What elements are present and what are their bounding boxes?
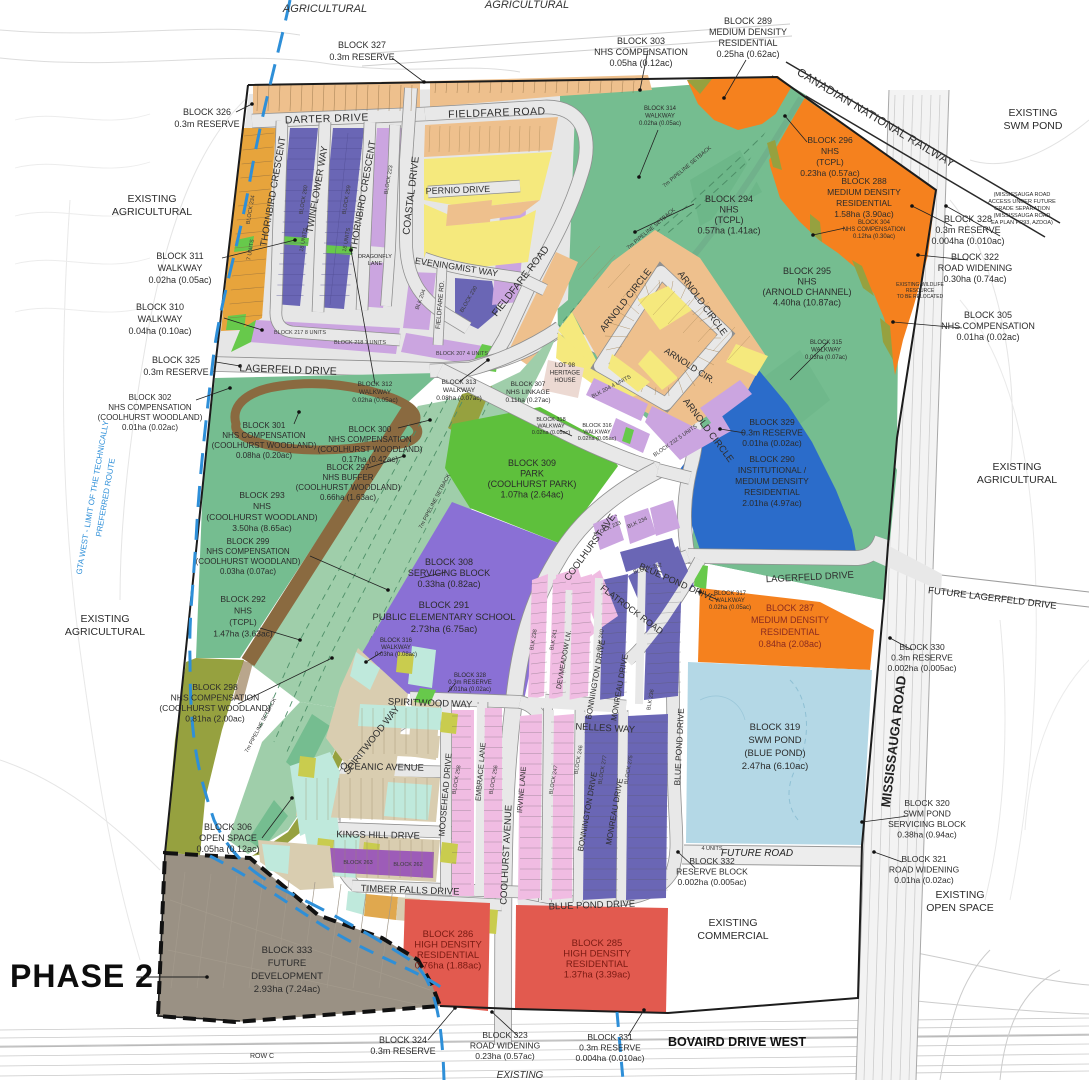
svg-text:RESIDENTIAL: RESIDENTIAL — [417, 950, 479, 961]
svg-text:BLOCK 304: BLOCK 304 — [858, 220, 891, 226]
svg-text:BLOCK 317: BLOCK 317 — [714, 591, 747, 597]
svg-text:0.004ha (0.010ac): 0.004ha (0.010ac) — [576, 1053, 645, 1063]
svg-text:BLOCK 289: BLOCK 289 — [724, 16, 772, 26]
svg-text:0.02ha (0.05ac): 0.02ha (0.05ac) — [148, 275, 211, 285]
svg-text:BLOCK 293: BLOCK 293 — [239, 490, 285, 500]
svg-text:BLOCK 263: BLOCK 263 — [343, 860, 372, 866]
svg-text:(COOLHURST WOODLAND): (COOLHURST WOODLAND) — [159, 703, 270, 713]
svg-text:BLOCK 325: BLOCK 325 — [152, 355, 200, 365]
svg-text:BLOCK 294: BLOCK 294 — [705, 194, 753, 204]
svg-text:1.47ha (3.63ac): 1.47ha (3.63ac) — [213, 629, 273, 639]
svg-text:0.03ha (0.08ac): 0.03ha (0.08ac) — [375, 652, 417, 658]
svg-text:(COOLHURST WOODLAND): (COOLHURST WOODLAND) — [296, 483, 401, 492]
svg-text:PARK: PARK — [520, 469, 544, 479]
svg-text:0.76ha (1.88ac): 0.76ha (1.88ac) — [415, 961, 482, 972]
svg-text:AGRICULTURAL: AGRICULTURAL — [977, 474, 1057, 486]
svg-text:NHS LINKAGE: NHS LINKAGE — [506, 389, 550, 396]
svg-text:DEVELOPMENT: DEVELOPMENT — [251, 971, 323, 982]
svg-text:(ARNOLD CHANNEL): (ARNOLD CHANNEL) — [762, 287, 851, 297]
svg-text:0.81ha (2.00ac): 0.81ha (2.00ac) — [185, 714, 245, 724]
svg-text:BLOCK 300: BLOCK 300 — [349, 425, 392, 434]
svg-text:2.73ha (6.75ac): 2.73ha (6.75ac) — [411, 624, 478, 635]
svg-text:RESIDENTIAL: RESIDENTIAL — [836, 198, 892, 208]
svg-text:BLOCK 295: BLOCK 295 — [783, 266, 831, 276]
svg-text:INSTITUTIONAL /: INSTITUTIONAL / — [738, 465, 807, 475]
svg-text:AGRICULTURAL: AGRICULTURAL — [65, 626, 145, 638]
svg-text:NHS: NHS — [821, 146, 839, 156]
svg-text:LANE: LANE — [368, 261, 383, 267]
svg-text:0.84ha (2.08ac): 0.84ha (2.08ac) — [758, 639, 821, 649]
svg-text:(COOLHURST WOODLAND): (COOLHURST WOODLAND) — [196, 557, 301, 566]
svg-text:OPEN SPACE: OPEN SPACE — [199, 833, 257, 843]
svg-text:BLOCK 319: BLOCK 319 — [750, 722, 801, 733]
svg-text:NHS COMPENSATION: NHS COMPENSATION — [171, 693, 260, 703]
svg-text:COMMERCIAL: COMMERCIAL — [697, 930, 768, 942]
svg-text:RESIDENTIAL: RESIDENTIAL — [718, 38, 777, 48]
svg-text:0.11ha (0.27ac): 0.11ha (0.27ac) — [505, 397, 550, 404]
svg-text:EXISTING: EXISTING — [127, 193, 176, 205]
svg-text:PHASE 2: PHASE 2 — [10, 958, 154, 994]
svg-text:BLOCK 328: BLOCK 328 — [944, 214, 992, 224]
svg-text:0.57ha (1.41ac): 0.57ha (1.41ac) — [697, 226, 760, 236]
svg-text:BLOCK 288: BLOCK 288 — [841, 176, 887, 186]
svg-text:1.07ha (2.64ac): 1.07ha (2.64ac) — [500, 490, 563, 500]
svg-text:0.02ha (0.05ac): 0.02ha (0.05ac) — [639, 121, 681, 127]
svg-text:AGRICULTURAL: AGRICULTURAL — [484, 0, 569, 11]
svg-text:2.01ha (4.97ac): 2.01ha (4.97ac) — [742, 498, 802, 508]
svg-text:SWM POND: SWM POND — [903, 809, 951, 819]
svg-text:0.3m RESERVE: 0.3m RESERVE — [891, 653, 953, 663]
svg-text:BLOCK 303: BLOCK 303 — [617, 36, 665, 46]
svg-text:0.02ha (0.05ac): 0.02ha (0.05ac) — [709, 605, 751, 611]
svg-text:BLOCK 326: BLOCK 326 — [183, 107, 231, 117]
svg-text:0.12ha (0.30ac): 0.12ha (0.30ac) — [853, 234, 895, 240]
svg-text:WALKWAY: WALKWAY — [381, 645, 411, 651]
svg-text:(COOLHURST PARK): (COOLHURST PARK) — [488, 479, 577, 489]
svg-text:BLOCK 287: BLOCK 287 — [766, 603, 814, 613]
svg-text:BOVAIRD DRIVE WEST: BOVAIRD DRIVE WEST — [668, 1035, 806, 1049]
svg-text:KINGS HILL DRIVE: KINGS HILL DRIVE — [336, 829, 420, 841]
svg-text:2.93ha (7.24ac): 2.93ha (7.24ac) — [254, 984, 321, 995]
svg-text:HERITAGE: HERITAGE — [550, 371, 580, 377]
svg-text:0.23ha (0.57ac): 0.23ha (0.57ac) — [475, 1051, 535, 1061]
svg-text:RESERVE BLOCK: RESERVE BLOCK — [676, 867, 748, 877]
svg-text:1.37ha (3.39ac): 1.37ha (3.39ac) — [564, 970, 631, 981]
svg-text:WALKWAY: WALKWAY — [443, 387, 476, 394]
svg-text:0.08ha (0.07ac): 0.08ha (0.07ac) — [436, 395, 482, 402]
svg-text:OPEN SPACE: OPEN SPACE — [926, 902, 994, 914]
svg-text:(MISSISSAUGA ROAD: (MISSISSAUGA ROAD — [994, 192, 1051, 198]
svg-text:0.3m RESERVE: 0.3m RESERVE — [143, 367, 208, 377]
svg-text:BLOCK 299: BLOCK 299 — [227, 537, 270, 546]
svg-text:4 UNITS: 4 UNITS — [701, 846, 722, 852]
svg-text:(COOLHURST WOODLAND): (COOLHURST WOODLAND) — [318, 445, 423, 454]
svg-text:(TCPL): (TCPL) — [229, 617, 257, 627]
svg-text:BLOCK 315: BLOCK 315 — [810, 340, 843, 346]
svg-text:NHS: NHS — [234, 606, 252, 616]
svg-text:NHS: NHS — [719, 205, 738, 215]
svg-text:TO BE RELOCATED: TO BE RELOCATED — [897, 294, 944, 300]
svg-text:HIGH DENSITY: HIGH DENSITY — [414, 940, 482, 951]
svg-text:WALKWAY: WALKWAY — [158, 263, 203, 273]
svg-text:EXISTING: EXISTING — [80, 613, 129, 625]
svg-text:ACCESS UNDER FUTURE: ACCESS UNDER FUTURE — [988, 199, 1056, 205]
svg-text:NHS COMPENSATION: NHS COMPENSATION — [108, 403, 192, 412]
svg-text:0.25ha (0.62ac): 0.25ha (0.62ac) — [716, 49, 779, 59]
svg-text:BLOCK 311: BLOCK 311 — [156, 251, 203, 261]
svg-text:NHS COMPENSATION: NHS COMPENSATION — [843, 227, 906, 233]
svg-text:4.40ha (10.87ac): 4.40ha (10.87ac) — [773, 298, 841, 308]
svg-text:BLOCK 218 7 UNITS: BLOCK 218 7 UNITS — [334, 340, 386, 346]
svg-text:BLOCK 313: BLOCK 313 — [442, 379, 477, 386]
svg-text:BLOCK 305: BLOCK 305 — [964, 310, 1012, 320]
svg-text:0.3m RESERVE: 0.3m RESERVE — [370, 1046, 435, 1056]
svg-text:NHS: NHS — [253, 501, 271, 511]
svg-text:NHS COMPENSATION: NHS COMPENSATION — [594, 47, 688, 57]
svg-text:0.01ha (0.02ac): 0.01ha (0.02ac) — [122, 423, 178, 432]
svg-text:0.03ha (0.07ac): 0.03ha (0.07ac) — [805, 355, 847, 361]
svg-text:ROW C: ROW C — [250, 1053, 274, 1060]
svg-text:BLOCK 310: BLOCK 310 — [136, 302, 184, 312]
svg-text:(TCPL): (TCPL) — [816, 157, 844, 167]
svg-text:SERVICING BLOCK: SERVICING BLOCK — [888, 819, 966, 829]
svg-text:SERVICING BLOCK: SERVICING BLOCK — [408, 568, 490, 578]
svg-text:(BLUE POND): (BLUE POND) — [744, 748, 805, 759]
svg-text:NHS BUFFER: NHS BUFFER — [322, 473, 373, 482]
svg-text:(COOLHURST WOODLAND): (COOLHURST WOODLAND) — [212, 441, 317, 450]
svg-text:BLOCK 312: BLOCK 312 — [358, 381, 393, 388]
svg-text:0.01ha (0.02ac): 0.01ha (0.02ac) — [956, 332, 1019, 342]
svg-text:BLOCK 286: BLOCK 286 — [423, 929, 474, 940]
svg-text:BLOCK 333: BLOCK 333 — [262, 945, 313, 956]
svg-text:BLOCK 262: BLOCK 262 — [393, 862, 422, 868]
svg-text:FUTURE ROAD: FUTURE ROAD — [721, 848, 793, 859]
svg-text:BLOCK 207 4 UNITS: BLOCK 207 4 UNITS — [436, 351, 488, 357]
svg-text:0.01ha (0.02ac): 0.01ha (0.02ac) — [894, 875, 954, 885]
svg-text:WALKWAY: WALKWAY — [138, 314, 183, 324]
svg-text:BLOCK 320: BLOCK 320 — [904, 798, 950, 808]
svg-text:EXISTING: EXISTING — [992, 461, 1041, 473]
svg-text:RESIDENTIAL: RESIDENTIAL — [566, 959, 628, 970]
svg-text:NHS COMPENSATION: NHS COMPENSATION — [941, 321, 1035, 331]
svg-text:ROAD WIDENING: ROAD WIDENING — [889, 865, 959, 875]
svg-text:AGRICULTURAL: AGRICULTURAL — [112, 206, 192, 218]
svg-text:LOT 98: LOT 98 — [555, 363, 576, 369]
svg-text:0.30ha (0.74ac): 0.30ha (0.74ac) — [943, 274, 1006, 284]
svg-text:MEDIUM DENSITY: MEDIUM DENSITY — [751, 615, 829, 625]
svg-text:BLOCK 285: BLOCK 285 — [572, 938, 623, 949]
svg-text:BLOCK 321: BLOCK 321 — [901, 854, 947, 864]
svg-text:ROAD WIDENING: ROAD WIDENING — [938, 263, 1013, 273]
svg-text:WALKWAY: WALKWAY — [583, 430, 611, 436]
svg-text:NHS COMPENSATION: NHS COMPENSATION — [328, 435, 412, 444]
svg-text:BLOCK 297: BLOCK 297 — [327, 463, 370, 472]
svg-text:BLOCK 217 8 UNITS: BLOCK 217 8 UNITS — [274, 330, 326, 336]
svg-text:0.3m RESERVE: 0.3m RESERVE — [741, 428, 803, 438]
svg-text:0.002ha (0.005ac): 0.002ha (0.005ac) — [678, 877, 747, 887]
svg-text:WALKWAY: WALKWAY — [715, 598, 745, 604]
svg-text:BLOCK 307: BLOCK 307 — [511, 381, 546, 388]
svg-text:BLOCK 316: BLOCK 316 — [380, 638, 413, 644]
svg-text:SWM POND: SWM POND — [748, 735, 801, 746]
svg-text:BLOCK 302: BLOCK 302 — [129, 393, 172, 402]
svg-text:0.01ha (0.02ac): 0.01ha (0.02ac) — [742, 438, 802, 448]
svg-text:HOUSE: HOUSE — [554, 378, 575, 384]
svg-text:0.03ha (0.07ac): 0.03ha (0.07ac) — [220, 567, 276, 576]
svg-text:BLOCK 314: BLOCK 314 — [644, 106, 677, 112]
svg-text:0.02ha (0.05ac): 0.02ha (0.05ac) — [352, 397, 398, 404]
svg-text:HIGH DENSITY: HIGH DENSITY — [563, 949, 631, 960]
svg-text:BLOCK 328: BLOCK 328 — [454, 673, 487, 679]
svg-text:BLOCK 296: BLOCK 296 — [807, 135, 853, 145]
svg-text:EXISTING: EXISTING — [935, 889, 984, 901]
svg-text:(MISSISSAUGA ROAD: (MISSISSAUGA ROAD — [994, 213, 1051, 219]
svg-text:BLOCK 329: BLOCK 329 — [749, 417, 795, 427]
svg-text:BLOCK 308: BLOCK 308 — [425, 557, 473, 567]
svg-text:AGRICULTURAL: AGRICULTURAL — [282, 3, 367, 15]
svg-text:0.02ha (0.05ac): 0.02ha (0.05ac) — [532, 430, 571, 436]
svg-text:3.50ha (8.65ac): 3.50ha (8.65ac) — [232, 523, 292, 533]
svg-text:0.05ha (0.12ac): 0.05ha (0.12ac) — [609, 58, 672, 68]
svg-text:WALKWAY: WALKWAY — [359, 389, 392, 396]
svg-text:OCEANIC AVENUE: OCEANIC AVENUE — [340, 761, 424, 773]
svg-text:0.04ha (0.10ac): 0.04ha (0.10ac) — [128, 326, 191, 336]
svg-text:NHS: NHS — [797, 277, 816, 287]
svg-text:0.38ha (0.94ac): 0.38ha (0.94ac) — [897, 830, 957, 840]
svg-text:BLOCK 290: BLOCK 290 — [749, 454, 795, 464]
svg-text:PUBLIC ELEMENTARY SCHOOL: PUBLIC ELEMENTARY SCHOOL — [372, 612, 515, 623]
svg-text:EXISTING: EXISTING — [708, 917, 757, 929]
svg-text:EXISTING: EXISTING — [1008, 107, 1057, 119]
svg-text:(COOLHURST WOODLAND): (COOLHURST WOODLAND) — [98, 413, 203, 422]
svg-text:MEDIUM DENSITY: MEDIUM DENSITY — [827, 187, 901, 197]
svg-text:0.3m RESERVE: 0.3m RESERVE — [935, 225, 1000, 235]
svg-text:WALKWAY: WALKWAY — [645, 114, 675, 120]
svg-text:SWM POND: SWM POND — [1004, 120, 1063, 132]
svg-text:BLOCK 298: BLOCK 298 — [192, 682, 238, 692]
svg-text:1.58ha (3.90ac): 1.58ha (3.90ac) — [834, 209, 894, 219]
svg-text:0.002ha (0.005ac): 0.002ha (0.005ac) — [888, 663, 957, 673]
svg-text:0.3m RESERVE: 0.3m RESERVE — [329, 52, 394, 62]
svg-text:0.01ha (0.02ac): 0.01ha (0.02ac) — [449, 687, 491, 693]
svg-text:0.3m RESERVE: 0.3m RESERVE — [579, 1043, 641, 1053]
svg-text:DRAGONFLY: DRAGONFLY — [358, 254, 392, 260]
svg-text:0.3m RESERVE: 0.3m RESERVE — [174, 119, 239, 129]
svg-text:0.05ha (0.12ac): 0.05ha (0.12ac) — [196, 844, 259, 854]
svg-text:BLOCK 306: BLOCK 306 — [204, 822, 252, 832]
svg-text:BLOCK 330: BLOCK 330 — [899, 642, 945, 652]
svg-text:MEDIUM DENSITY: MEDIUM DENSITY — [735, 476, 809, 486]
svg-text:RESIDENTIAL: RESIDENTIAL — [760, 627, 819, 637]
svg-text:0.02ha (0.05ac): 0.02ha (0.05ac) — [578, 436, 617, 442]
svg-text:BLOCK 291: BLOCK 291 — [419, 600, 470, 611]
svg-text:NHS COMPENSATION: NHS COMPENSATION — [222, 431, 306, 440]
svg-text:2.47ha (6.10ac): 2.47ha (6.10ac) — [742, 761, 809, 772]
svg-text:MEDIUM DENSITY: MEDIUM DENSITY — [709, 27, 787, 37]
svg-text:RESIDENTIAL: RESIDENTIAL — [744, 487, 800, 497]
svg-text:BLOCK 292: BLOCK 292 — [220, 594, 266, 604]
svg-text:EXISTING: EXISTING — [497, 1070, 544, 1080]
svg-text:(TCPL): (TCPL) — [715, 215, 744, 225]
svg-text:BLOCK 316: BLOCK 316 — [582, 423, 611, 429]
svg-text:0.3m RESERVE: 0.3m RESERVE — [448, 680, 492, 686]
svg-text:BLOCK 324: BLOCK 324 — [379, 1035, 427, 1045]
svg-text:BLOCK 323: BLOCK 323 — [482, 1030, 528, 1040]
svg-text:0.33ha (0.82ac): 0.33ha (0.82ac) — [417, 579, 480, 589]
svg-text:(COOLHURST WOODLAND): (COOLHURST WOODLAND) — [206, 512, 317, 522]
svg-text:NHS COMPENSATION: NHS COMPENSATION — [206, 547, 290, 556]
svg-text:BLOCK 322: BLOCK 322 — [951, 252, 999, 262]
svg-text:WALKWAY: WALKWAY — [537, 424, 565, 430]
svg-text:WALKWAY: WALKWAY — [811, 348, 841, 354]
svg-text:0.08ha (0.20ac): 0.08ha (0.20ac) — [236, 451, 292, 460]
svg-text:BLOCK 309: BLOCK 309 — [508, 458, 556, 468]
svg-text:FUTURE: FUTURE — [268, 958, 307, 969]
svg-text:BLOCK 331: BLOCK 331 — [587, 1032, 633, 1042]
svg-text:BLOCK 327: BLOCK 327 — [338, 40, 386, 50]
svg-text:0.004ha (0.010ac): 0.004ha (0.010ac) — [931, 236, 1004, 246]
svg-text:0.66ha (1.63ac): 0.66ha (1.63ac) — [320, 493, 376, 502]
svg-text:BLOCK 301: BLOCK 301 — [243, 421, 286, 430]
svg-text:ROAD WIDENING: ROAD WIDENING — [470, 1041, 540, 1051]
svg-text:GRADE SEPARATION: GRADE SEPARATION — [994, 206, 1050, 212]
svg-text:BLOCK 318: BLOCK 318 — [536, 417, 565, 423]
